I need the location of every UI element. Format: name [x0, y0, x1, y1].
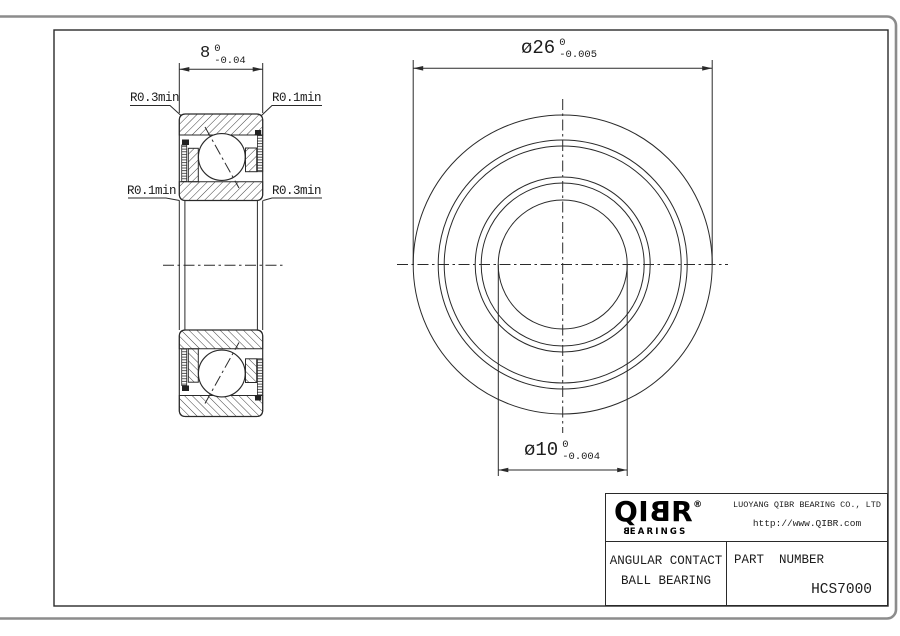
company-website: http://www.QIBR.com: [727, 519, 887, 529]
side-section-view: [128, 63, 322, 417]
bearing-section-bottom: [179, 330, 262, 417]
tolerance-lower: -0.004: [562, 451, 600, 463]
tolerance-upper: 0: [562, 439, 600, 451]
radius-label-top-right: R0.1min: [272, 91, 321, 105]
product-name-cell: ANGULAR CONTACT BALL BEARING: [606, 542, 727, 605]
front-view: [397, 60, 728, 476]
dimension-value: 8: [200, 45, 210, 62]
company-logo-subtitle: BEARINGS: [621, 527, 687, 537]
outer-diameter-dimension-text: ø26 0 -0.005: [521, 39, 597, 61]
title-block-header-row: QIBR® BEARINGS LUOYANG QIBR BEARING CO.,…: [606, 494, 887, 542]
ball: [198, 134, 245, 181]
tolerance-upper: 0: [559, 37, 597, 49]
inner-ring-section: [179, 182, 262, 201]
right-seal-anchor: [255, 130, 261, 135]
left-seal-anchor: [182, 140, 189, 146]
inner-ring-shoulder: [188, 148, 198, 181]
title-block: QIBR® BEARINGS LUOYANG QIBR BEARING CO.,…: [605, 493, 888, 606]
right-seal: [257, 135, 262, 172]
bore-diameter-dimension-text: ø10 0 -0.004: [524, 441, 600, 463]
dimension-value: ø26: [521, 39, 555, 58]
registered-mark: ®: [693, 500, 702, 510]
tolerance-lower: -0.04: [214, 55, 246, 67]
part-number-value: HCS7000: [811, 582, 872, 598]
bearing-section-top: [179, 114, 262, 201]
width-dimension: [179, 63, 262, 113]
radius-label-bottom-right: R0.3min: [272, 184, 321, 198]
company-name: LUOYANG QIBR BEARING CO., LTD: [727, 501, 887, 510]
dimension-value: ø10: [524, 441, 558, 460]
width-dimension-text: 8 0 -0.04: [200, 45, 246, 67]
left-seal: [182, 145, 187, 182]
tolerance-lower: -0.005: [559, 49, 597, 61]
engineering-drawing-sheet: 8 0 -0.04 ø26 0 -0.005 ø10 0 -0.004 R0.3…: [0, 0, 900, 636]
tolerance-upper: 0: [214, 43, 246, 55]
product-line2: BALL BEARING: [606, 575, 726, 588]
outer-ring-section: [179, 114, 262, 135]
radius-label-bottom-left: R0.1min: [127, 184, 176, 198]
company-logo: QIBR®: [614, 498, 702, 526]
outer-ring-shoulder: [246, 148, 257, 172]
part-number-cell: PART NUMBER HCS7000: [727, 542, 886, 605]
radius-label-top-left: R0.3min: [130, 91, 179, 105]
part-number-label: PART NUMBER: [734, 553, 824, 567]
product-line1: ANGULAR CONTACT: [606, 555, 726, 568]
